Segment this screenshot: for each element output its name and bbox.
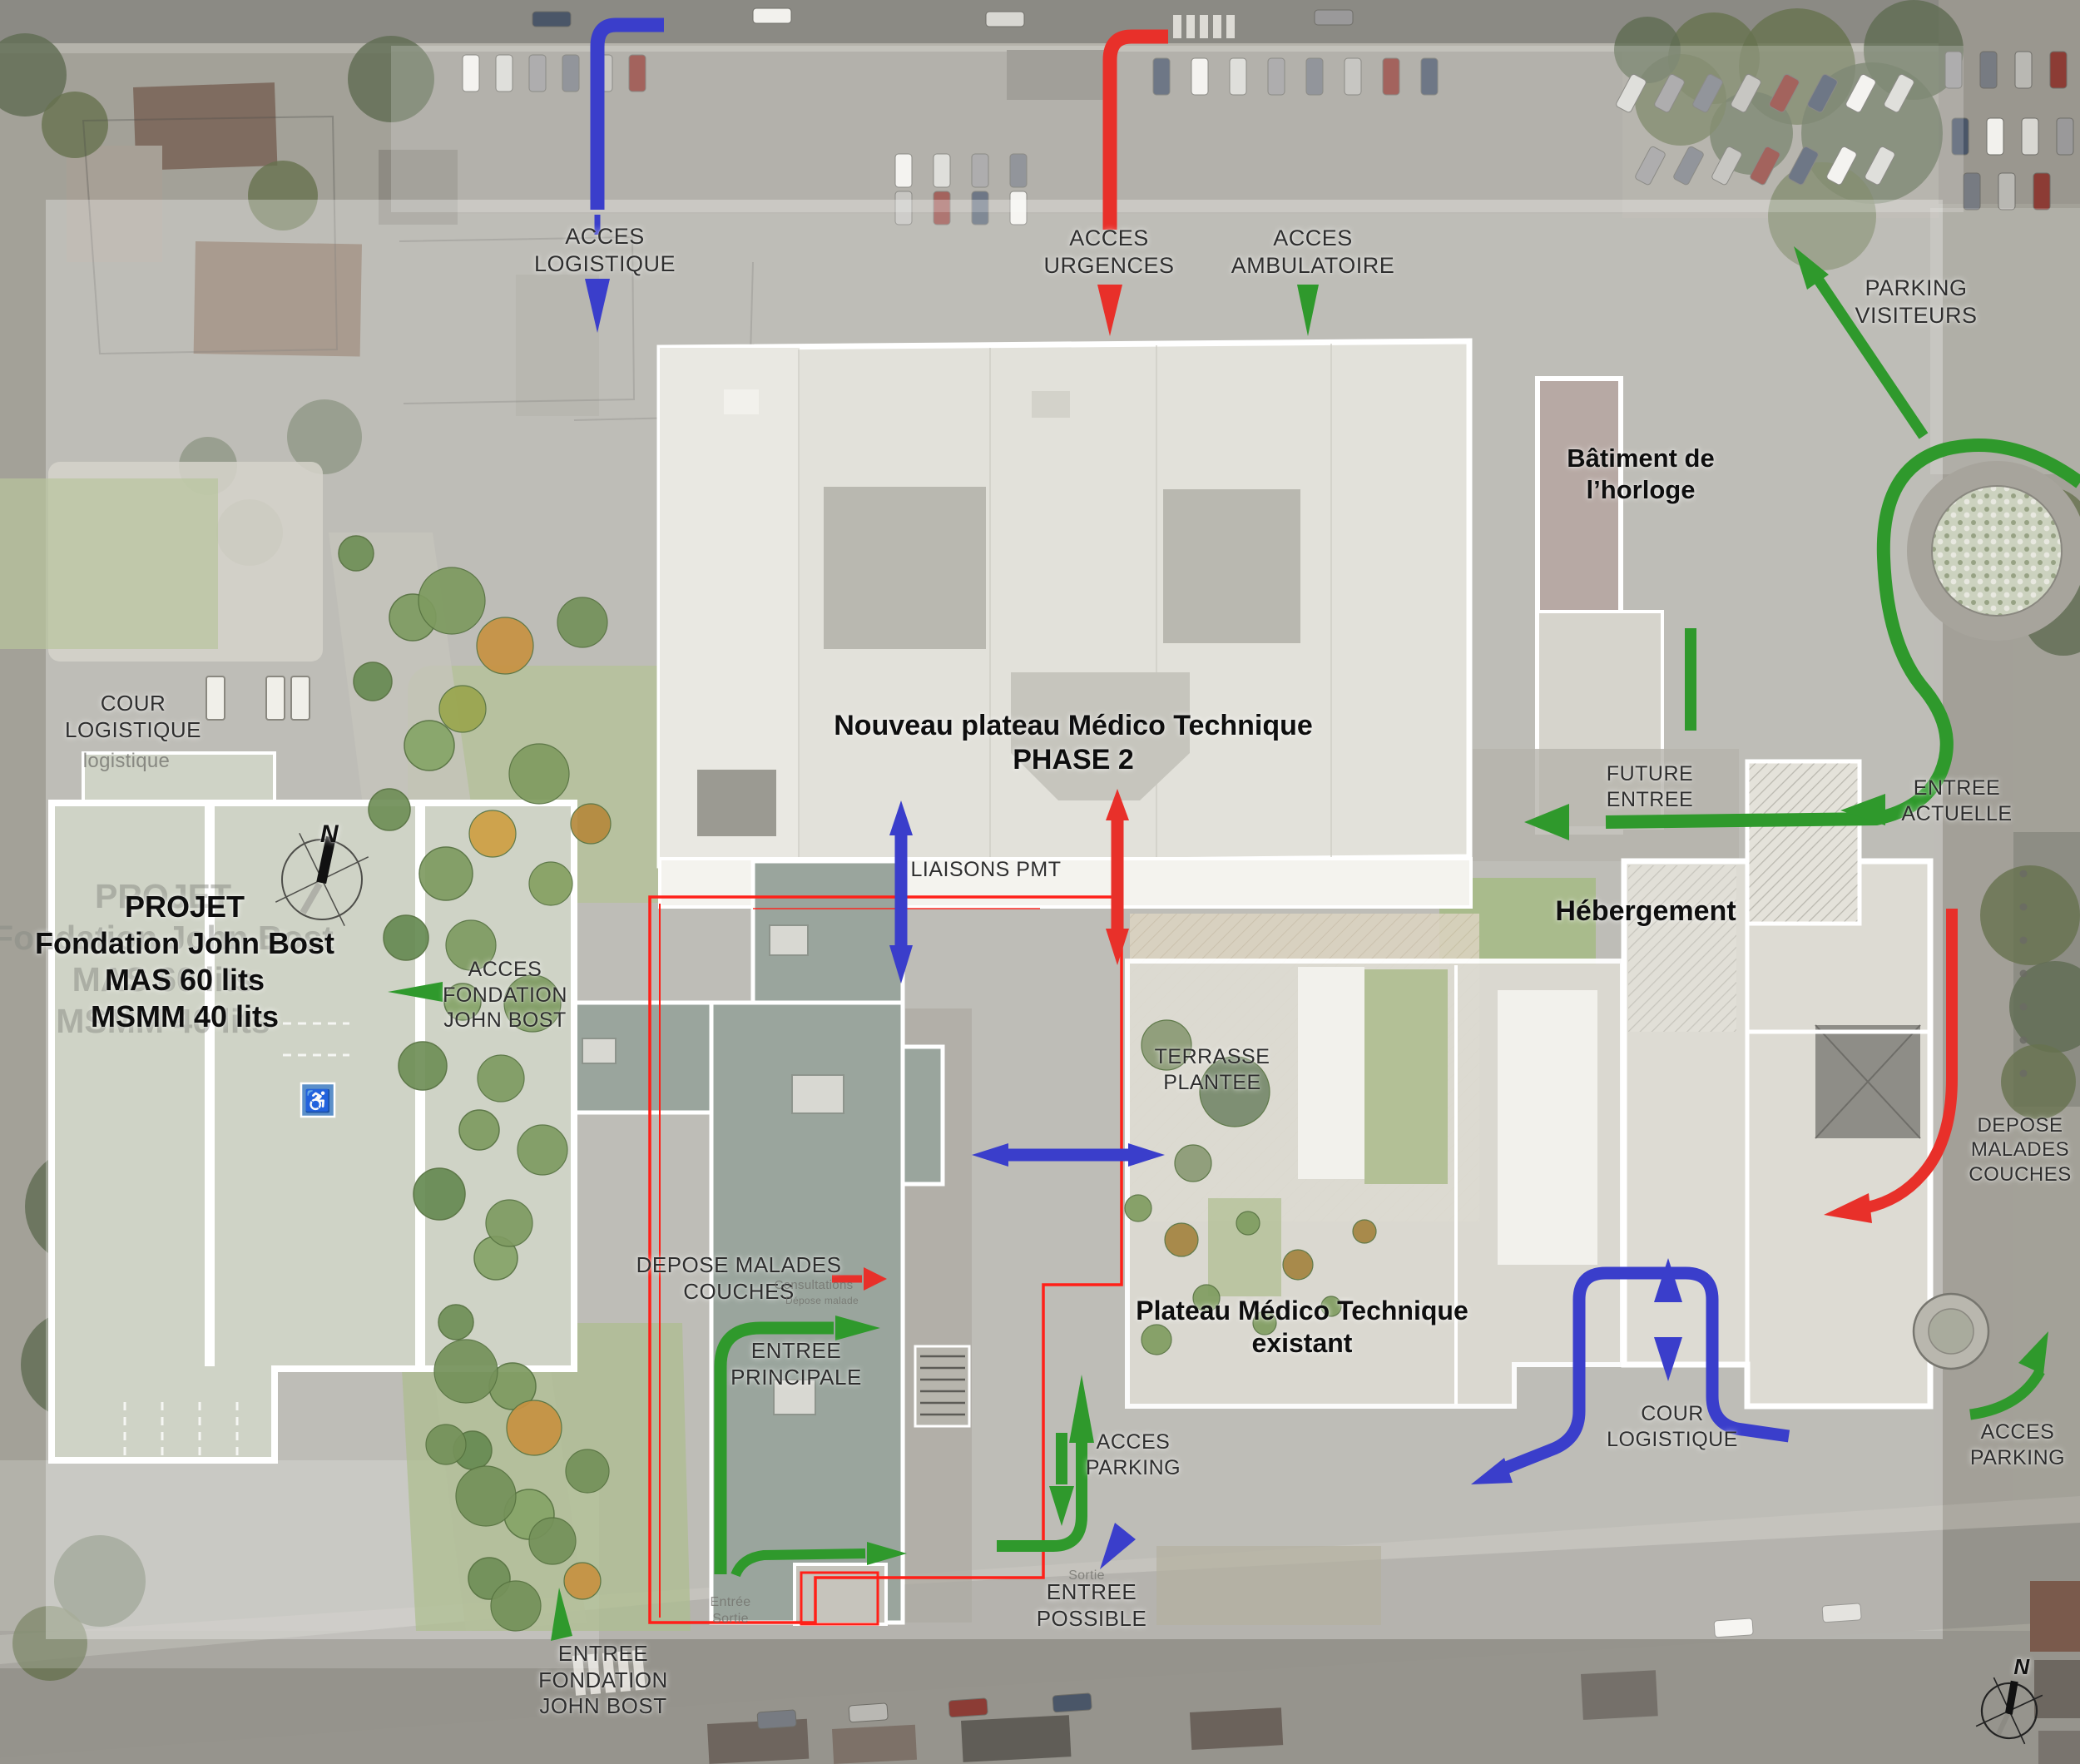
site-plan-map: { "colors": { "route_blue": "#3a3ecb", "… <box>0 0 2080 1764</box>
label-cour-logistique-left: COURLOGISTIQUE <box>65 691 201 743</box>
tree-icon <box>529 862 572 905</box>
car-icon <box>986 12 1024 27</box>
label-plateau-existant: Plateau Médico Techniqueexistant <box>1136 1295 1468 1360</box>
tree-dot <box>2020 870 2028 878</box>
crosswalk <box>1186 15 1195 38</box>
photo-roof <box>2034 1660 2080 1718</box>
tree-icon <box>564 1563 601 1599</box>
crosswalk <box>1173 15 1181 38</box>
label-acces-urgences: ACCESURGENCES <box>1043 225 1174 280</box>
car-icon <box>1998 173 2015 210</box>
parking-ramp <box>915 1346 969 1426</box>
car-icon <box>1052 1693 1092 1712</box>
tree-icon <box>477 617 533 674</box>
label-consultations-faint: Consultations <box>775 1278 854 1293</box>
label-acces-parking-right: ACCESPARKING <box>1970 1420 2065 1470</box>
label-terrasse-plantee: TERRASSEPLANTEE <box>1155 1044 1270 1095</box>
label-entree-fondation: ENTREEFONDATIONJOHN BOST <box>538 1641 668 1720</box>
tree-icon <box>1353 1220 1376 1243</box>
tree-icon <box>354 662 392 701</box>
tree-icon <box>439 686 486 732</box>
label-acces-ambulatoire: ACCESAMBULATOIRE <box>1231 225 1395 280</box>
label-batiment-horloge: Bâtiment del’horloge <box>1567 443 1714 506</box>
tree-dot <box>2020 1003 2028 1011</box>
svg-text:♿: ♿ <box>305 1088 331 1113</box>
photo-roof <box>2030 1581 2080 1652</box>
tree-icon <box>384 915 428 960</box>
handicap-parking-icon: ♿ <box>301 1083 334 1117</box>
tree-icon <box>438 1305 473 1340</box>
label-acces-parking-center: ACCESPARKING <box>1086 1430 1181 1480</box>
label-acces-fondation: ACCESFONDATIONJOHN BOST <box>443 957 567 1033</box>
tree-icon <box>2001 1044 2076 1119</box>
car-icon <box>1980 52 1997 88</box>
label-compass-n: N <box>320 820 339 850</box>
label-hebergement: Hébergement <box>1555 894 1736 929</box>
tree-dot <box>2020 1070 2028 1078</box>
photo-roof <box>1581 1670 1658 1720</box>
tree-dot <box>2020 904 2028 911</box>
label-cour-logistique-right: COURLOGISTIQUE <box>1607 1401 1738 1452</box>
tree-icon <box>529 1518 576 1564</box>
tree-icon <box>571 804 611 844</box>
crosswalk <box>1213 15 1221 38</box>
label-future-entree: FUTUREENTREE <box>1607 761 1693 812</box>
car-icon <box>532 12 571 27</box>
tree-icon <box>414 1168 465 1220</box>
car-icon <box>1315 10 1353 25</box>
photo-roof <box>2038 1731 2080 1764</box>
label-nouveau-plateau: Nouveau plateau Médico TechniquePHASE 2 <box>834 709 1313 778</box>
tree-icon <box>459 1110 499 1150</box>
tree-icon <box>404 721 454 771</box>
tree-dot <box>2020 1037 2028 1044</box>
tree-icon <box>419 847 473 900</box>
car-icon <box>849 1703 888 1722</box>
tree-icon <box>1175 1145 1211 1182</box>
tree-icon <box>399 1042 447 1090</box>
roundabout-bottom-right <box>1914 1294 1988 1369</box>
tree-icon <box>369 789 410 830</box>
tree-icon <box>509 744 569 804</box>
roundabout-top-right <box>1907 461 2080 641</box>
tree-icon <box>566 1449 609 1493</box>
tree-icon <box>42 92 108 158</box>
photo-roof <box>832 1725 917 1764</box>
photo-roof <box>1190 1707 1283 1750</box>
tree-icon <box>1165 1223 1198 1256</box>
tree-icon <box>434 1340 498 1403</box>
label-depose-malade-faint: Dépose malade <box>785 1295 859 1307</box>
car-icon <box>1964 173 1980 210</box>
label-cour-logistique-ghost: logistique <box>83 749 170 773</box>
photo-roof <box>961 1715 1071 1762</box>
label-projet: PROJETFondation John Bost MAS 60 litsMSM… <box>35 889 334 1035</box>
car-icon <box>753 8 791 23</box>
tree-icon <box>486 1200 532 1246</box>
building-entry-annex <box>1747 761 1860 924</box>
tree-icon <box>1980 865 2080 965</box>
car-icon <box>2022 118 2038 155</box>
tree-icon <box>1283 1250 1313 1280</box>
tree-icon <box>478 1055 524 1102</box>
tree-icon <box>426 1425 466 1464</box>
crosswalk <box>1226 15 1235 38</box>
car-icon <box>2057 118 2073 155</box>
label-compass-n: N <box>2013 1654 2029 1681</box>
label-entree-actuelle: ENTREEACTUELLE <box>1901 775 2012 826</box>
tree-icon <box>339 536 374 571</box>
label-acces-logistique: ACCESLOGISTIQUE <box>534 223 676 278</box>
building-hebergement <box>1624 861 1930 1406</box>
tree-icon <box>1236 1212 1260 1235</box>
crosswalk <box>1200 15 1208 38</box>
label-parking-visiteurs: PARKINGVISITEURS <box>1855 275 1977 330</box>
building-nouveau-plateau <box>660 341 1469 865</box>
tree-icon <box>557 597 607 647</box>
tree-icon <box>491 1581 541 1631</box>
car-icon <box>2015 52 2032 88</box>
tree-icon <box>469 810 516 857</box>
car-icon <box>2050 52 2067 88</box>
tree-icon <box>507 1400 562 1455</box>
tree-icon <box>1125 1195 1151 1221</box>
label-liaisons-pmt: LIAISONS PMT <box>910 857 1061 883</box>
tree-icon <box>456 1466 516 1526</box>
tree-icon <box>518 1125 567 1175</box>
label-entree-possible: ENTREEPOSSIBLE <box>1037 1579 1147 1632</box>
tree-dot <box>2020 937 2028 944</box>
label-entree-sortie-faint: EntréeSortie <box>711 1594 751 1627</box>
label-depose-malades-right: DEPOSEMALADESCOUCHES <box>1969 1113 2072 1187</box>
label-entree-principale: ENTREEPRINCIPALE <box>730 1338 862 1390</box>
car-icon <box>1987 118 2003 155</box>
tree-icon <box>418 567 485 634</box>
car-icon <box>948 1698 988 1717</box>
car-icon <box>757 1710 796 1729</box>
car-icon <box>2033 173 2050 210</box>
tree-dot <box>2020 970 2028 978</box>
